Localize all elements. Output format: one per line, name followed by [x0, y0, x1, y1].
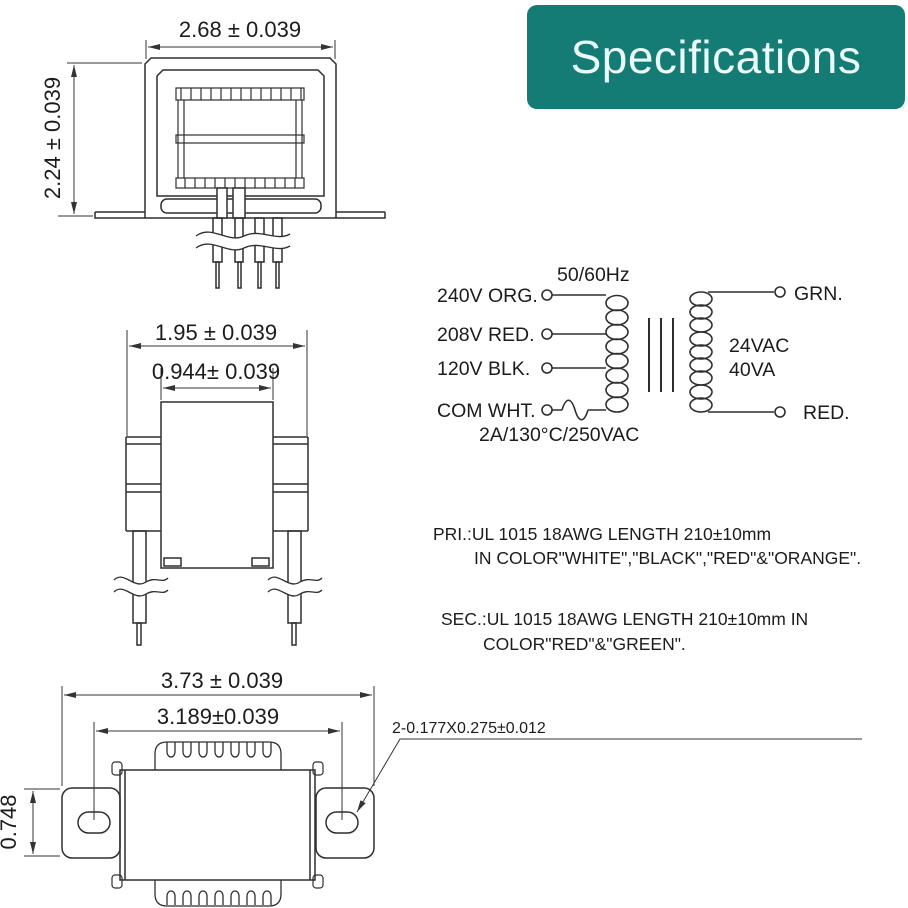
front-bobbin	[176, 88, 304, 188]
front-view	[95, 58, 385, 288]
output-power-label: 40VA	[729, 359, 775, 381]
primary-terminals	[542, 290, 552, 415]
front-lead-wires	[213, 218, 282, 288]
bottom-outer-dim-text: 3.73 ± 0.039	[161, 668, 283, 693]
slot-callout-text: 2-0.177X0.275±0.012	[392, 720, 546, 737]
fuse-rating-label: 2A/130°C/250VAC	[479, 424, 639, 446]
pri-note-line1: PRI.:UL 1015 18AWG LENGTH 210±10mm	[433, 524, 771, 544]
tap-com-label: COM WHT.	[437, 400, 536, 422]
transformer-core	[649, 318, 673, 392]
schematic-frequency-label: 50/60Hz	[557, 264, 630, 286]
side-left-bracket	[126, 437, 161, 531]
secondary-red-label: RED.	[803, 402, 850, 424]
pri-note-line2: IN COLOR"WHITE","BLACK","RED"&"ORANGE".	[474, 548, 861, 568]
technical-drawing: 2.68 ± 0.039 2.24 ± 0.039	[0, 0, 908, 908]
front-height-dim-text: 2.24 ± 0.039	[40, 77, 65, 199]
side-inner-dim-text: 0.944± 0.039	[152, 359, 280, 384]
bottom-top-bobbin-flange	[155, 742, 281, 770]
bottom-view-dimensions	[24, 686, 862, 856]
bottom-body	[120, 770, 315, 880]
secondary-coil	[690, 292, 712, 412]
left-mount-flange	[62, 788, 120, 858]
front-view-dimensions	[58, 40, 335, 216]
tap-240v-label: 240V ORG.	[437, 285, 538, 307]
spec-sheet: Specifications	[0, 0, 908, 908]
bottom-spacing-dim-text: 3.189±0.039	[157, 704, 279, 729]
side-outer-dim-text: 1.95 ± 0.039	[155, 320, 277, 345]
secondary-green-label: GRN.	[794, 283, 843, 305]
side-core-stack	[161, 402, 273, 568]
tap-120v-label: 120V BLK.	[437, 358, 530, 380]
sec-note-line2: COLOR"RED"&"GREEN".	[483, 634, 686, 654]
bottom-view	[62, 742, 374, 906]
slot-callout-leader	[357, 739, 862, 812]
side-wire-breaks	[114, 577, 322, 596]
bottom-flange-dim-text: 0.748	[0, 794, 21, 849]
side-view	[114, 402, 322, 645]
bottom-corner-tabs	[112, 762, 323, 888]
output-voltage-label: 24VAC	[729, 335, 789, 357]
front-width-dim-text: 2.68 ± 0.039	[179, 17, 301, 42]
tap-208v-label: 208V RED.	[437, 324, 535, 346]
sec-note-line1: SEC.:UL 1015 18AWG LENGTH 210±10mm IN	[441, 609, 808, 629]
bottom-bottom-bobbin-flange	[155, 880, 281, 906]
primary-coil	[606, 296, 628, 413]
side-right-bracket	[273, 437, 308, 531]
primary-wires	[552, 295, 606, 410]
fuse-symbol	[562, 400, 588, 420]
